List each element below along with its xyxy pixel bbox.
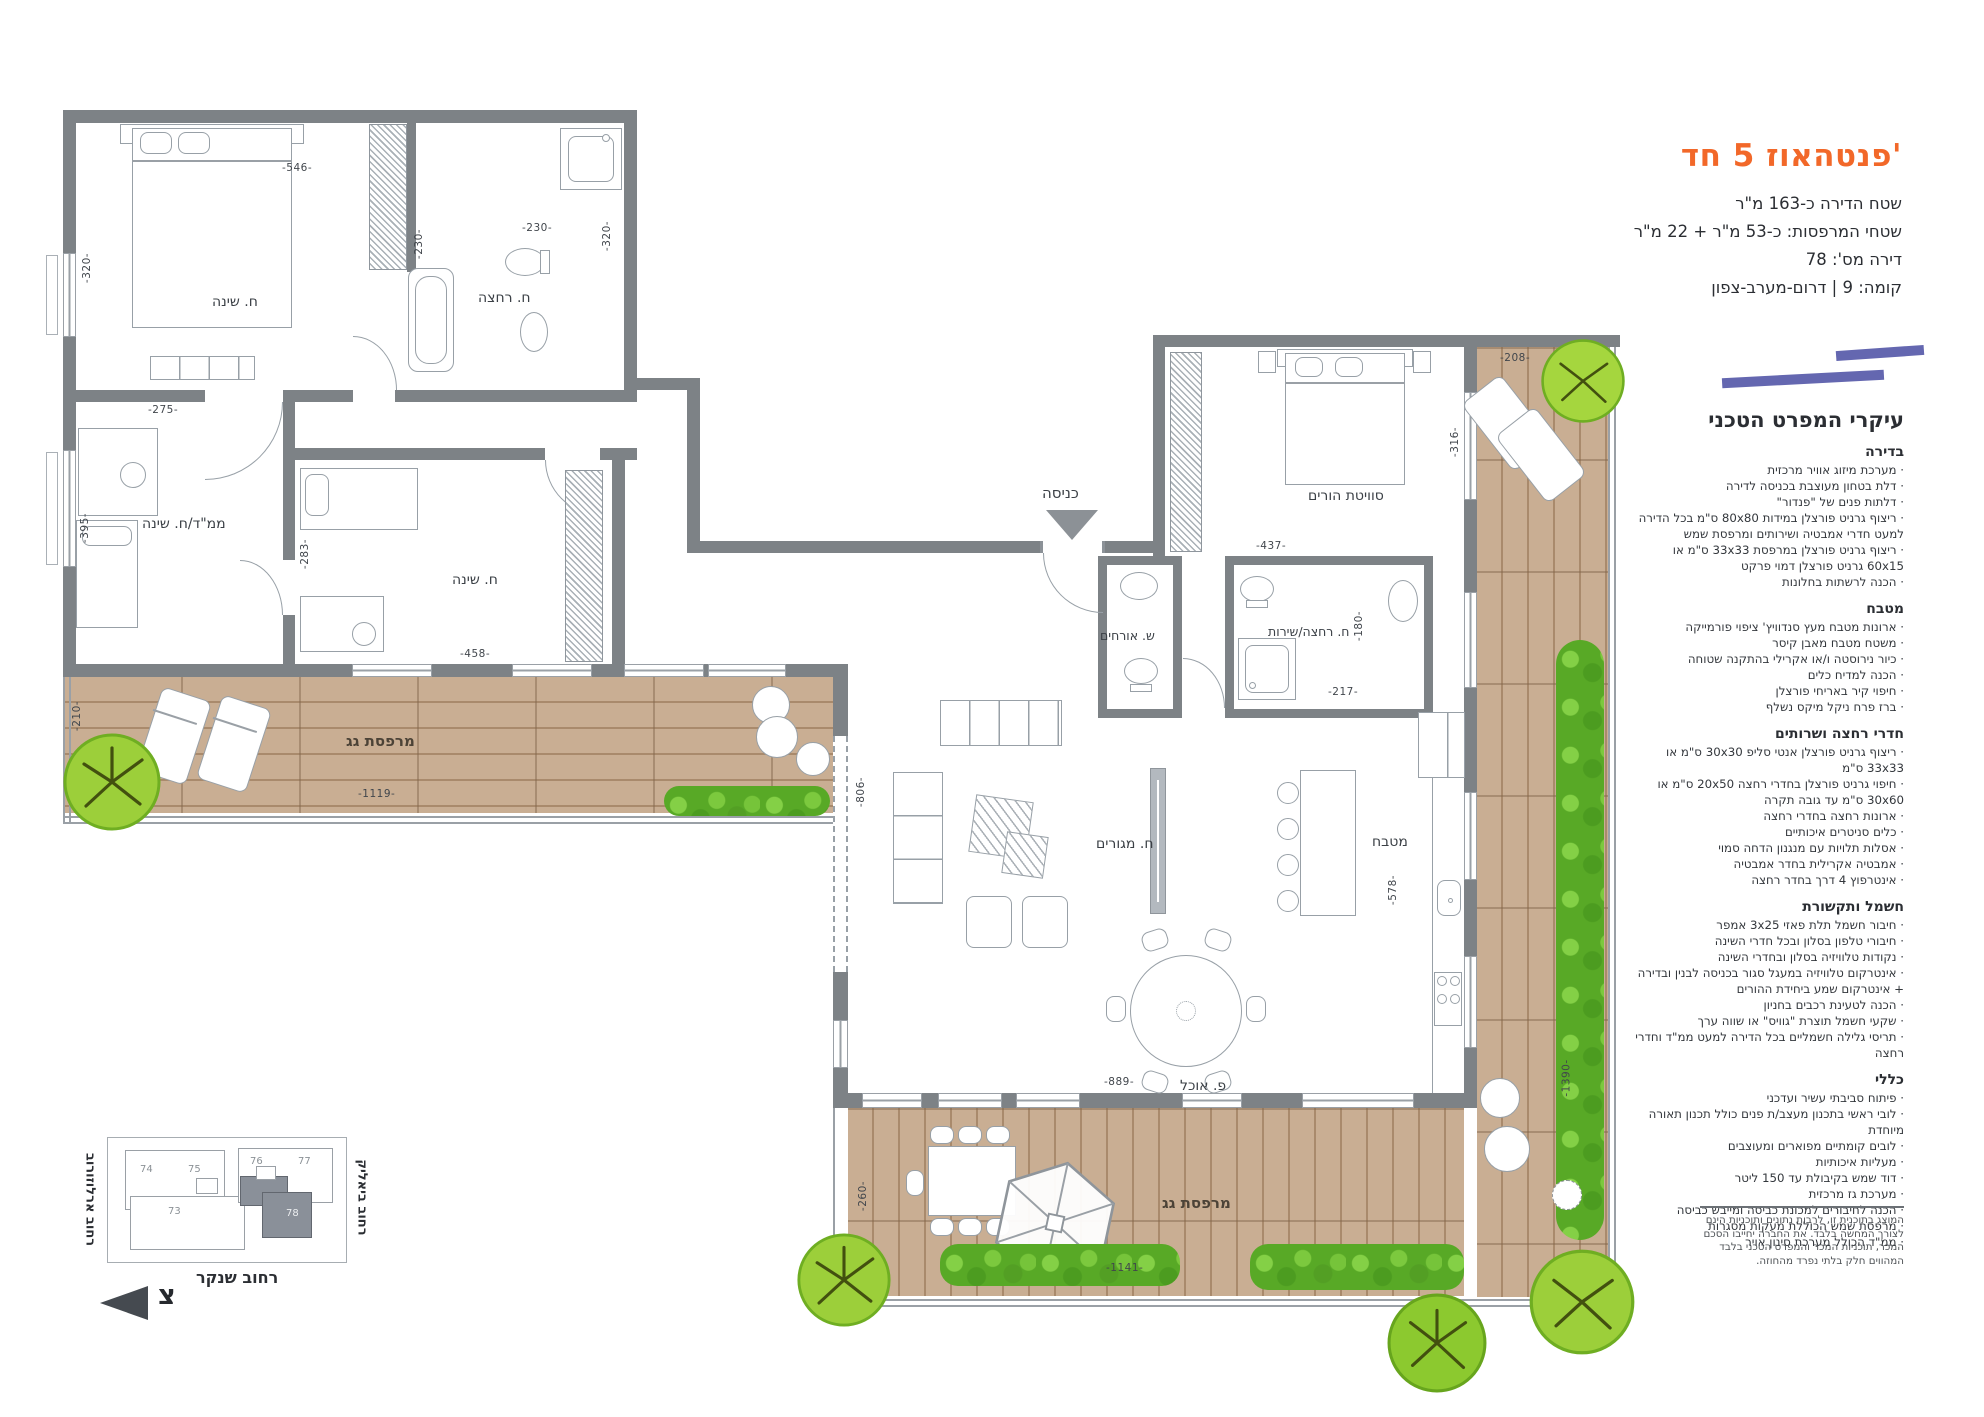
entrance-label: כניסה — [1042, 484, 1079, 502]
room-label-master: ח. שינה — [212, 294, 258, 310]
window — [63, 450, 76, 567]
dim-217: -217- — [1328, 686, 1358, 698]
toilet — [1124, 658, 1158, 684]
entrance-arrow-icon — [1046, 510, 1098, 540]
outdoor-chair — [958, 1218, 982, 1236]
window — [708, 664, 786, 677]
parapet-line — [833, 1305, 1616, 1307]
dining-chair — [1140, 1068, 1171, 1095]
armchair — [966, 896, 1012, 948]
sofa — [893, 772, 943, 904]
bar-stool — [1277, 782, 1299, 804]
console-buffet — [940, 700, 1062, 746]
spec-item: מערכת מיזוג אוויר מרכזית — [1634, 462, 1904, 478]
window-sill — [46, 452, 58, 565]
window-glazing — [833, 736, 848, 972]
side-table — [756, 716, 798, 758]
spec-section-heading: כללי — [1634, 1072, 1904, 1088]
spec-item: דוד שמש בקיבולת עד 150 ליטר — [1634, 1170, 1904, 1186]
nightstand — [1413, 351, 1431, 373]
window — [862, 1093, 922, 1108]
dim-260: -260- — [857, 1181, 869, 1211]
window — [512, 664, 592, 677]
parapet-line — [63, 816, 848, 818]
terrace-label-bottom: מרפסת גג — [1162, 1194, 1231, 1212]
keyplan-unit-74: 74 — [140, 1164, 153, 1175]
dim-275: -275- — [148, 404, 178, 416]
door-swing — [240, 560, 283, 615]
spec-item: ריצוף גרניט פורצלן אנטי סליפ 30x30 ס"מ א… — [1634, 744, 1904, 776]
sink — [520, 312, 548, 352]
door-opening — [283, 560, 295, 615]
window — [1182, 1093, 1242, 1108]
bed-blanket-line — [1285, 382, 1405, 384]
desk-chair — [352, 622, 376, 646]
spec-item: כלים סניטרים איכותיים — [1634, 824, 1904, 840]
north-letter: צ — [158, 1280, 176, 1311]
keyplan-unit-76: 76 — [250, 1156, 263, 1167]
bar-stool — [1277, 890, 1299, 912]
accent-bar — [1836, 345, 1924, 361]
pillow — [1335, 357, 1363, 377]
dim-578: -578- — [1387, 875, 1399, 905]
tree — [1540, 338, 1626, 424]
spec-item: נקודות טלוויזיה בסלון ובחדרי השינה — [1634, 949, 1904, 965]
burner — [1450, 994, 1460, 1004]
dim-889: -889- — [1104, 1076, 1134, 1088]
spec-title: עיקרי המפרט הטכני — [1634, 408, 1904, 432]
accent-bar — [1722, 370, 1884, 388]
wall-entry-corridor — [700, 541, 1040, 553]
pillow — [140, 132, 172, 154]
door-swing — [205, 402, 283, 480]
spec-item: חיבור חשמל תלת פאזי 3x25 אמפר — [1634, 917, 1904, 933]
wall-living-west-b — [833, 972, 848, 1020]
spec-item: דלתות פנים של "פנדור" — [1634, 494, 1904, 510]
technical-spec: עיקרי המפרט הטכני בדירה מערכת מיזוג אווי… — [1634, 408, 1904, 1250]
window — [1464, 956, 1477, 1048]
spec-item: שקעי חשמל תוצרת "גוויס" או שווה ערך — [1634, 1013, 1904, 1029]
faucet — [1448, 898, 1453, 903]
floorplan-sheet: כניסה ח. שינה ח. רחצה ממ"ד/ח. שינה ח. שי… — [0, 0, 1984, 1417]
nightstand — [1258, 351, 1276, 373]
entry-door-swing — [1043, 553, 1103, 613]
spec-item: חיפוי קיר באריחי פורצלן — [1634, 683, 1904, 699]
spec-item: ריצוף גרניט פורצלן במידות 80x80 ס"מ בכל … — [1634, 510, 1904, 542]
burner — [1437, 994, 1447, 1004]
kitchen-tall-cabinet — [1418, 712, 1465, 778]
spec-item: מעליות איכותיות — [1634, 1154, 1904, 1170]
parapet-line — [63, 822, 848, 824]
dim-230b: -230- — [413, 229, 425, 259]
keyplan-stair-core — [196, 1178, 218, 1194]
door-opening — [353, 390, 395, 402]
outdoor-chair — [986, 1126, 1010, 1144]
bar-stool — [1277, 854, 1299, 876]
dim-806: -806- — [855, 777, 867, 807]
apartment-info: שטח הדירה כ-163 מ"ר שטחי המרפסות: כ-53 מ… — [1520, 190, 1902, 302]
wall-living-west-a — [833, 664, 848, 736]
hedge — [664, 786, 830, 816]
dining-chair — [1106, 996, 1126, 1022]
tree — [1528, 1248, 1636, 1356]
wardrobe-closet — [1170, 352, 1202, 552]
wall-suite-left — [1153, 335, 1165, 565]
dim-1119: -1119- — [358, 788, 395, 800]
sink — [1120, 572, 1158, 600]
street-label-bottom: רחוב שנקר — [196, 1268, 278, 1287]
room-label-guest-wc: ש. אורחים — [1100, 628, 1155, 643]
wall-bedroom2-right — [612, 448, 625, 677]
window — [1016, 1093, 1080, 1108]
dresser — [150, 356, 255, 380]
spec-item: ברז פרח ניקל מיקס נשלף — [1634, 699, 1904, 715]
tree — [796, 1232, 892, 1328]
spec-item: לובי ראשי בתכנון מעצב/ת פנים כולל תכנון … — [1634, 1106, 1904, 1138]
spec-item: חיפוי גרניט פורצלן בחדרי רחצה 20x50 ס"מ … — [1634, 776, 1904, 808]
spec-item: אסלות תלויות עם מנגנון הדחה סמוי — [1634, 840, 1904, 856]
spec-section-heading: בדירה — [1634, 444, 1904, 460]
window — [63, 253, 76, 337]
dim-320a: -320- — [81, 253, 93, 283]
pillow — [305, 474, 329, 516]
shower-drain — [1249, 682, 1256, 689]
window — [352, 664, 432, 677]
shower-drain — [602, 134, 610, 142]
window — [833, 1020, 848, 1068]
hedge — [940, 1244, 1180, 1286]
parapet-line — [1614, 347, 1616, 1303]
dim-1390: -1390- — [1561, 1059, 1573, 1096]
window — [1302, 1093, 1414, 1108]
info-area: שטח הדירה כ-163 מ"ר — [1520, 190, 1902, 218]
dining-chair — [1140, 926, 1171, 953]
info-balconies: שטחי המרפסות: כ-53 מ"ר + 22 מ"ר — [1520, 218, 1902, 246]
spec-item: ארונות מטבח מעץ סנדוויץ' ציפוי פורמייקה — [1634, 619, 1904, 635]
spec-section-heading: חדרי רחצה ושרותים — [1634, 726, 1904, 742]
toilet-tank — [540, 250, 550, 274]
outdoor-chair — [958, 1126, 982, 1144]
dim-546: -546- — [282, 162, 312, 174]
outdoor-chair — [906, 1170, 924, 1196]
spec-item: אמבטיה אקרילית בחדר אמבטיה — [1634, 856, 1904, 872]
wardrobe-closet — [369, 124, 407, 270]
pillow — [178, 132, 210, 154]
spec-item: לובים קומתיים מפוארים ומעוצבים — [1634, 1138, 1904, 1154]
door-opening — [545, 448, 600, 460]
dim-437: -437- — [1256, 540, 1286, 552]
spec-item: כיור נירוסטה ו/או אקרילי בהתקנה שטוחה — [1634, 651, 1904, 667]
round-table — [1484, 1126, 1530, 1172]
spec-item: אינטרפוץ 4 דרך בחדר רחצה — [1634, 872, 1904, 888]
spec-item: הכנה לרשתות בחלונות — [1634, 574, 1904, 590]
sink — [1388, 580, 1418, 622]
keyplan-building-b — [130, 1196, 245, 1250]
hedge — [1556, 640, 1604, 1240]
burner — [1437, 976, 1447, 986]
spec-item: הכנה למדיח כלים — [1634, 667, 1904, 683]
spec-item: ריצוף גרניט פורצלן במרפסת 33x33 ס"מ או 6… — [1634, 542, 1904, 574]
window — [1464, 792, 1477, 880]
dim-230a: -230- — [522, 222, 552, 234]
bar-stool — [1277, 818, 1299, 840]
door-opening — [205, 390, 283, 402]
keyplan-unit-78: 78 — [286, 1208, 299, 1219]
dim-458: -458- — [460, 648, 490, 660]
dim-210: -210- — [71, 701, 83, 731]
window — [624, 664, 704, 677]
dim-395: -395- — [79, 513, 91, 543]
desk-chair — [120, 462, 146, 488]
toilet — [505, 248, 545, 276]
coffee-table — [1001, 831, 1048, 878]
planter — [796, 742, 830, 776]
wall-wing-mid — [63, 390, 637, 402]
kitchen-counter — [1432, 778, 1465, 1093]
wall-wing-top — [63, 110, 637, 123]
door-jamb — [1040, 541, 1043, 553]
tree — [1386, 1292, 1488, 1394]
wall-wing-right — [624, 110, 637, 390]
kitchen-island — [1300, 770, 1356, 916]
toilet-tank — [1130, 684, 1152, 692]
room-label-bedroom2: ח. שינה — [452, 572, 498, 588]
burner — [1450, 976, 1460, 986]
spec-item: דלת בטחון מעוצבת בכניסה לדירה — [1634, 478, 1904, 494]
spec-section-heading: מטבח — [1634, 601, 1904, 617]
window-sill — [46, 255, 58, 335]
dim-320b: -320- — [601, 221, 613, 251]
keyplan-stair-core — [256, 1166, 276, 1180]
tree — [62, 732, 162, 832]
planter — [1480, 1078, 1520, 1118]
room-label-dining: פ. אוכל — [1180, 1078, 1226, 1094]
room-label-living: ח. מגורים — [1096, 836, 1153, 852]
table-center — [1176, 1001, 1196, 1021]
wall-hall — [687, 378, 700, 553]
room-label-bath1: ח. רחצה — [478, 290, 531, 306]
keyplan-unit-75: 75 — [188, 1164, 201, 1175]
dim-283: -283- — [299, 539, 311, 569]
dim-1141: -1141- — [1106, 1262, 1143, 1274]
divider — [1700, 1206, 1904, 1208]
toilet — [1240, 576, 1274, 602]
north-arrow-icon — [100, 1286, 148, 1320]
room-label-kitchen: מטבח — [1372, 834, 1408, 850]
terrace-label-left: מרפסת גג — [346, 732, 415, 750]
dim-208: -208- — [1500, 352, 1530, 364]
keyplan-unit-73: 73 — [168, 1206, 181, 1217]
room-label-suite: סוויטת הורים — [1308, 488, 1384, 504]
hedge — [1250, 1244, 1464, 1290]
toilet-tank — [1246, 600, 1268, 608]
wall-living-west-c — [833, 1068, 848, 1108]
info-floor-orientation: קומה: 9 | דרום-מערב-צפון — [1520, 274, 1902, 302]
spec-item: אינטרקום טלוויזיה במעגל סגור בכניסה לבני… — [1634, 965, 1904, 997]
legal-disclaimer: המוצג בתוכנית זו, לרבות נתונים ותוכניות … — [1690, 1214, 1904, 1268]
spec-item: הכנה לטעינת רכבים בחניון — [1634, 997, 1904, 1013]
desk — [78, 428, 158, 516]
keyplan-unit-77: 77 — [298, 1156, 311, 1167]
outdoor-chair — [930, 1218, 954, 1236]
room-label-mamad: ממ"ד/ח. שינה — [142, 516, 226, 532]
door-swing — [1183, 658, 1225, 708]
spec-item: ארונות רחצה בחדרי רחצה — [1634, 808, 1904, 824]
pillow — [1295, 357, 1323, 377]
window — [938, 1093, 1002, 1108]
wardrobe-closet — [565, 470, 603, 662]
bbq-grill — [1552, 1180, 1582, 1210]
dining-chair — [1246, 996, 1266, 1022]
room-label-bath2: ח. רחצה/שירות — [1268, 624, 1349, 639]
spec-item: משטח מטבח מאבן קיסר — [1634, 635, 1904, 651]
dim-316: -316- — [1449, 427, 1461, 457]
outdoor-chair — [930, 1126, 954, 1144]
wall-bedroom2-left — [283, 402, 295, 677]
street-label-right: רחוב ביאליק — [355, 1148, 370, 1248]
bed-blanket-line — [132, 160, 292, 162]
spec-item: פיתוח סביבתי עשיר ועדכני — [1634, 1090, 1904, 1106]
door-swing — [353, 336, 397, 390]
info-apartment-number: דירה מס': 78 — [1520, 246, 1902, 274]
spec-item: חיבורי טלפון בסלון ובכל חדרי השינה — [1634, 933, 1904, 949]
parapet-line — [833, 1299, 1616, 1301]
street-label-left: רחוב ארלוזורוב — [83, 1140, 98, 1260]
window — [1464, 592, 1477, 688]
parapet-line — [1608, 347, 1610, 1303]
dining-chair — [1203, 926, 1234, 953]
armchair — [1022, 896, 1068, 948]
dim-180: -180- — [1353, 611, 1365, 641]
shower-tray — [568, 136, 614, 182]
door-jamb — [1102, 541, 1105, 553]
page-title: פנטהאוז 5 חד' — [1560, 138, 1902, 174]
tv-screen-line — [1157, 780, 1159, 902]
spec-section-heading: חשמל ותקשורת — [1634, 899, 1904, 915]
entry-door-opening — [1040, 541, 1105, 553]
spec-item: מערכת גז מרכזית — [1634, 1186, 1904, 1202]
spec-item: תריסי גלילה חשמליים בכל הדירה למעט ממ"ד … — [1634, 1029, 1904, 1061]
bathtub-inner — [415, 276, 447, 364]
